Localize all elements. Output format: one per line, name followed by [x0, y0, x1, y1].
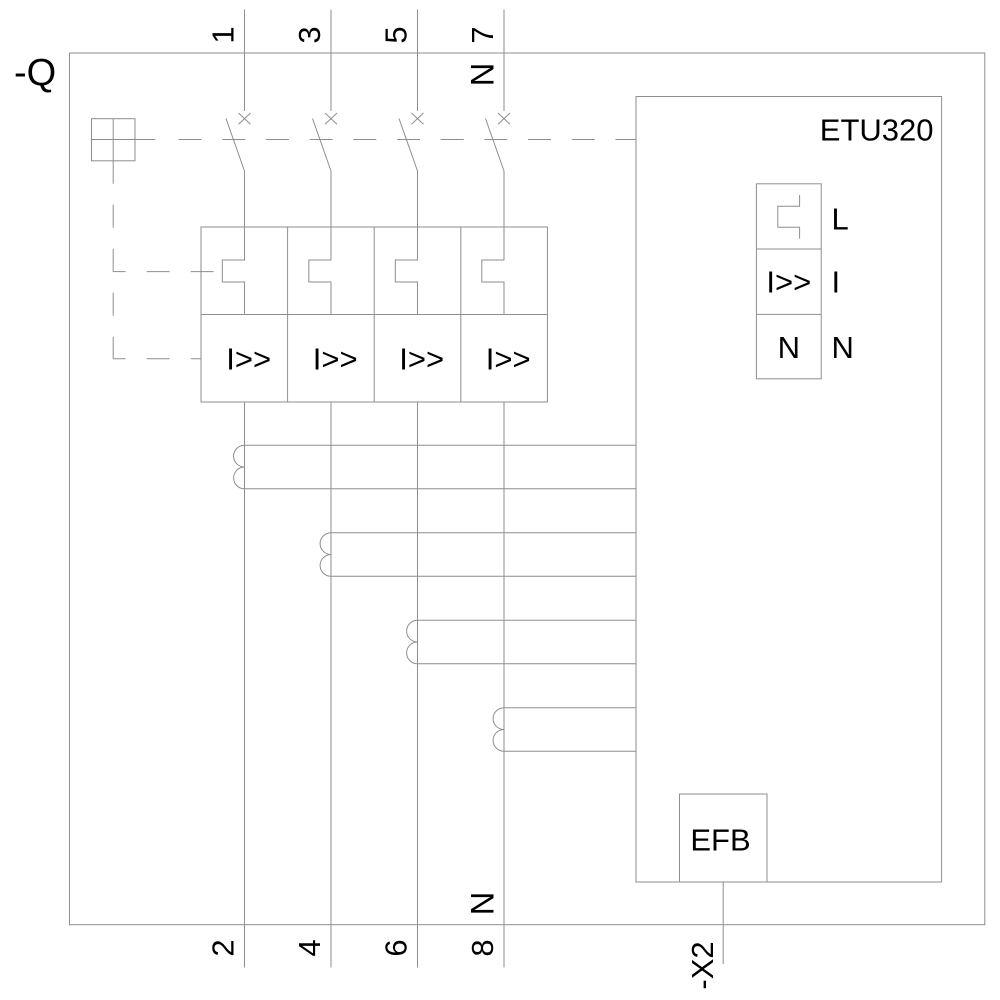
svg-text:I>>: I>>: [226, 341, 271, 376]
svg-text:N: N: [832, 330, 854, 365]
svg-text:7: 7: [465, 26, 500, 43]
svg-text:I>>: I>>: [399, 341, 444, 376]
svg-text:4: 4: [292, 939, 327, 956]
svg-text:6: 6: [379, 939, 414, 956]
svg-text:I>>: I>>: [766, 265, 811, 300]
svg-text:8: 8: [465, 939, 500, 956]
svg-text:N: N: [465, 892, 501, 915]
svg-text:EFB: EFB: [690, 823, 750, 858]
svg-text:I>>: I>>: [486, 341, 531, 376]
svg-text:1: 1: [206, 26, 241, 43]
svg-text:L: L: [832, 202, 849, 237]
svg-text:-Q: -Q: [14, 52, 56, 94]
svg-text:I: I: [832, 265, 841, 300]
svg-text:N: N: [778, 330, 800, 365]
svg-text:ETU320: ETU320: [820, 113, 934, 148]
svg-text:I>>: I>>: [313, 341, 358, 376]
svg-text:N: N: [465, 63, 501, 86]
svg-text:5: 5: [379, 26, 414, 43]
svg-text:-X2: -X2: [685, 941, 720, 989]
svg-text:3: 3: [292, 26, 327, 43]
svg-text:2: 2: [206, 939, 241, 956]
